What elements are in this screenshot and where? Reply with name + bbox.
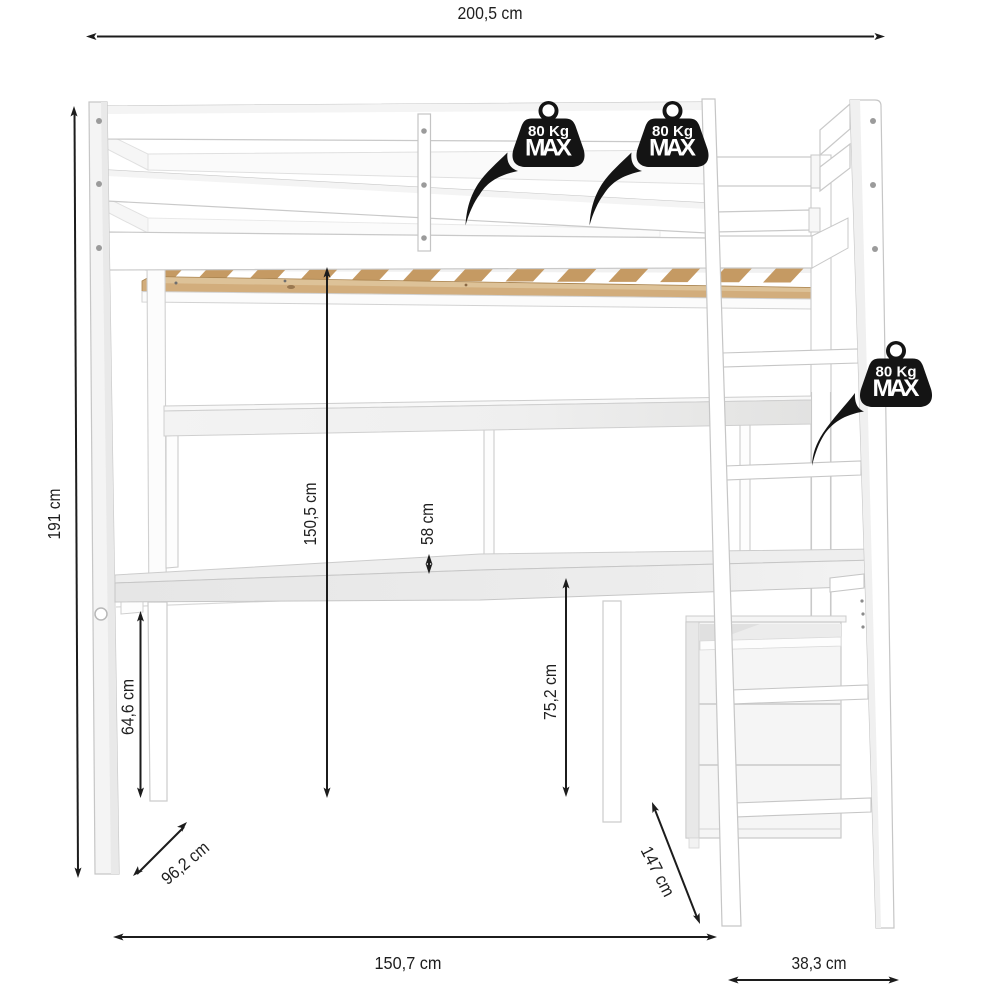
svg-text:MAX: MAX bbox=[649, 135, 697, 162]
svg-text:150,7 cm: 150,7 cm bbox=[375, 953, 442, 973]
svg-text:147 cm: 147 cm bbox=[637, 843, 679, 900]
svg-text:150,5 cm: 150,5 cm bbox=[300, 483, 320, 546]
svg-text:38,3 cm: 38,3 cm bbox=[792, 953, 847, 973]
svg-text:191 cm: 191 cm bbox=[44, 489, 64, 540]
svg-text:200,5 cm: 200,5 cm bbox=[458, 3, 523, 23]
svg-text:58 cm: 58 cm bbox=[417, 503, 437, 545]
svg-text:MAX: MAX bbox=[525, 135, 573, 162]
svg-text:75,2 cm: 75,2 cm bbox=[540, 664, 560, 720]
svg-text:64,6 cm: 64,6 cm bbox=[118, 679, 138, 735]
svg-text:MAX: MAX bbox=[873, 375, 921, 402]
